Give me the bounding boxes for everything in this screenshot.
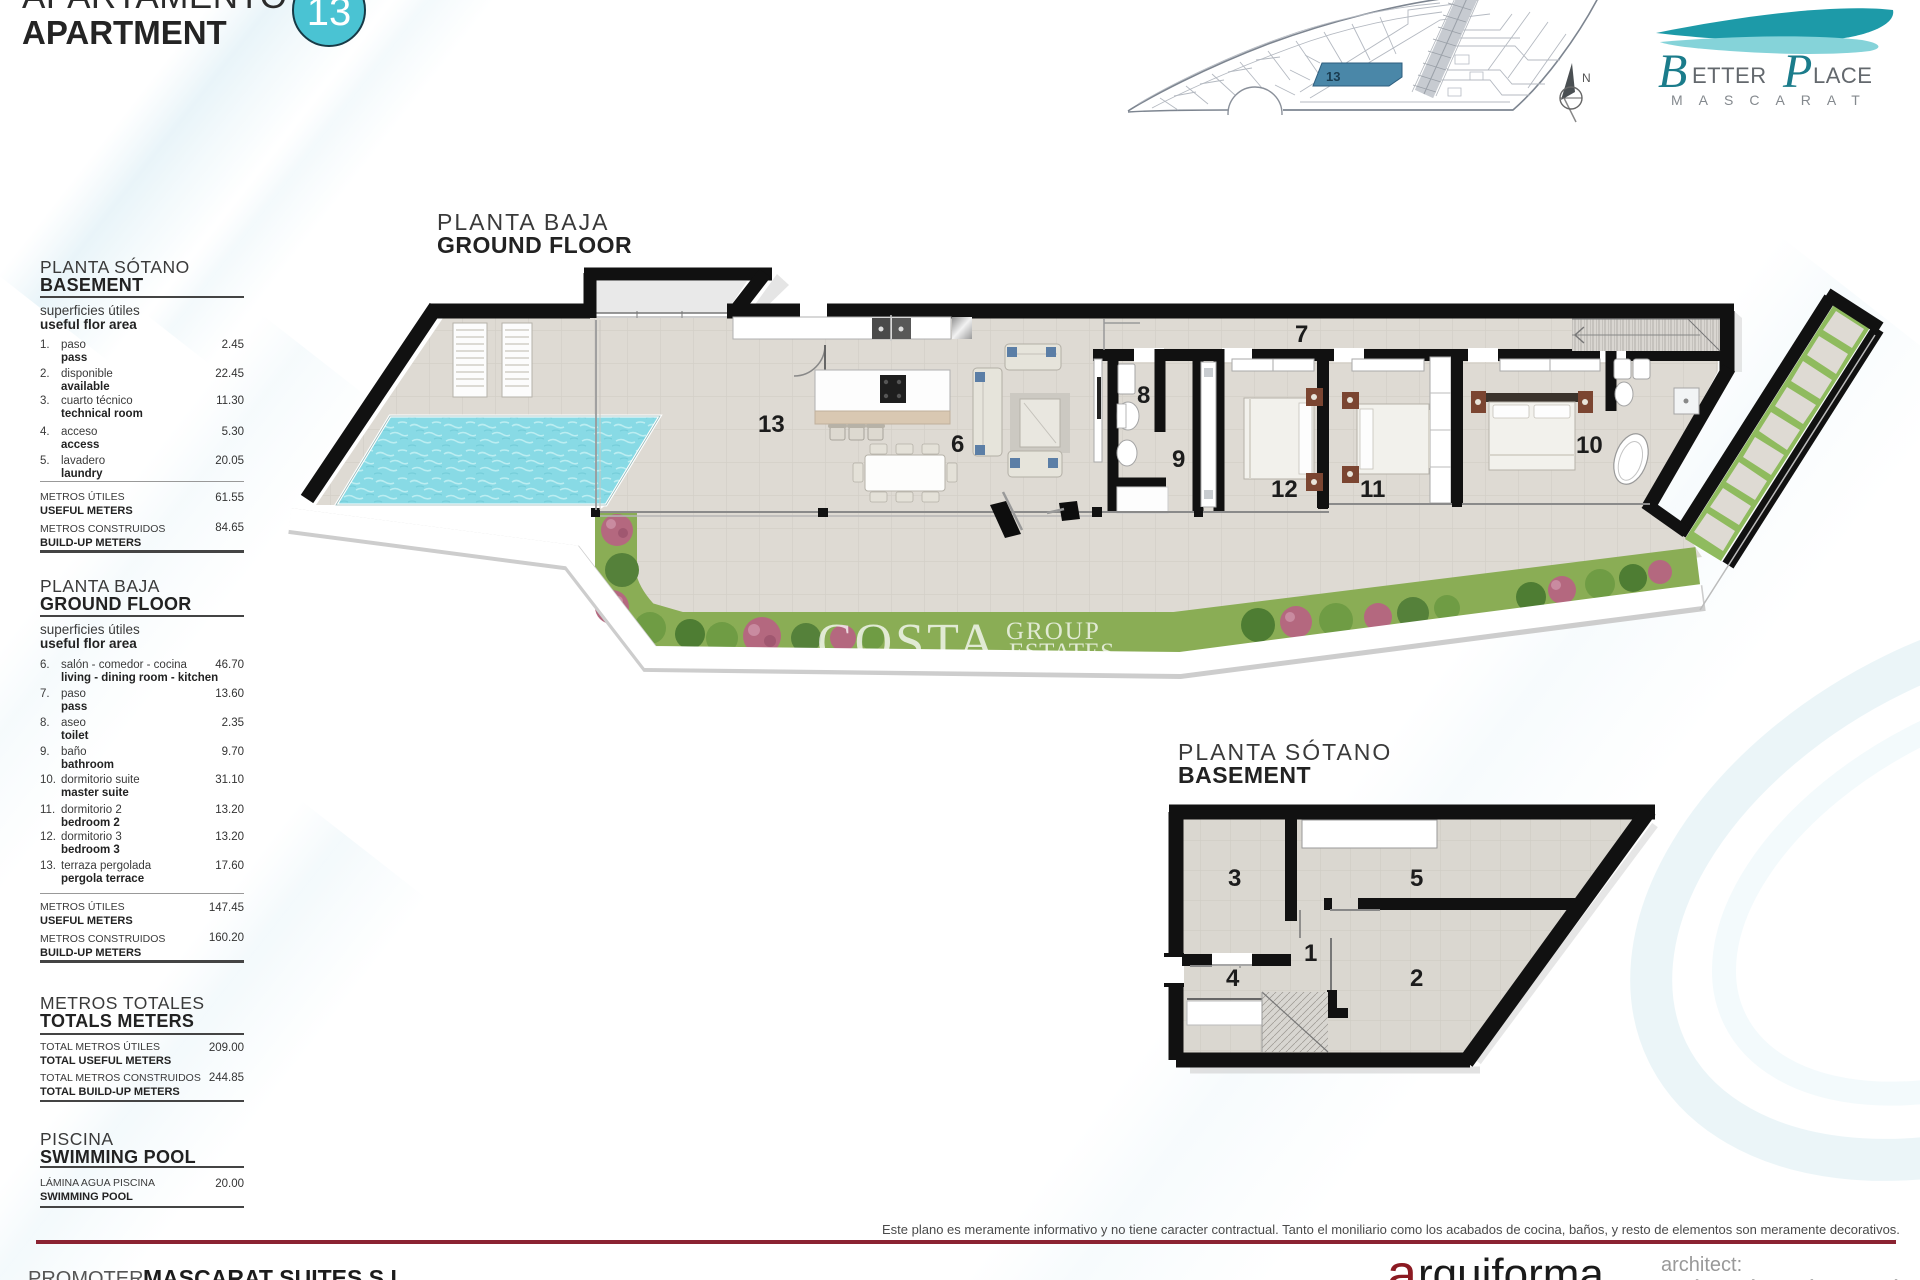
svg-text:4: 4 — [1226, 965, 1240, 992]
svg-text:6: 6 — [951, 431, 964, 458]
svg-text:P: P — [1782, 45, 1812, 98]
svg-text:N: N — [1582, 71, 1591, 85]
svg-text:3: 3 — [1228, 865, 1241, 892]
svg-text:COSTA: COSTA — [817, 614, 998, 671]
svg-text:MASCARAT: MASCARAT — [1671, 92, 1876, 108]
svg-text:ETTER: ETTER — [1692, 63, 1767, 88]
svg-text:7: 7 — [1295, 321, 1308, 348]
svg-text:B: B — [1658, 45, 1687, 98]
svg-text:8: 8 — [1137, 382, 1150, 409]
svg-text:5: 5 — [1410, 865, 1423, 892]
svg-text:13: 13 — [758, 411, 785, 438]
svg-text:LACE: LACE — [1813, 63, 1872, 88]
svg-text:2: 2 — [1410, 965, 1423, 992]
svg-text:1: 1 — [1304, 940, 1317, 967]
svg-text:ESTATES: ESTATES — [1009, 639, 1115, 666]
svg-text:10: 10 — [1576, 432, 1603, 459]
svg-text:12: 12 — [1271, 476, 1298, 503]
svg-text:13: 13 — [1326, 69, 1340, 84]
svg-text:11: 11 — [1360, 476, 1385, 503]
svg-text:9: 9 — [1172, 446, 1185, 473]
